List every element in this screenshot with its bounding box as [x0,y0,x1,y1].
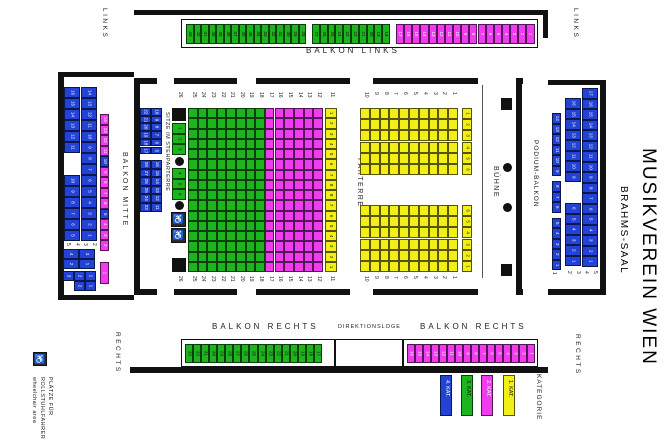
seat[interactable]: 2 [74,281,85,291]
seat[interactable] [226,170,236,180]
seat[interactable] [380,227,390,238]
seat[interactable]: 9 [100,167,109,178]
seat[interactable] [265,170,275,180]
seat[interactable] [236,180,246,190]
seat[interactable] [255,190,265,200]
seat[interactable] [399,227,409,238]
seat[interactable]: 4 [100,219,109,230]
seat[interactable] [370,142,380,153]
seat[interactable] [217,211,227,221]
seat[interactable]: 1 [552,260,561,271]
seat[interactable] [370,216,380,227]
seat[interactable]: 14 [552,113,561,124]
seat[interactable] [246,108,256,118]
seat[interactable] [198,241,208,251]
seat[interactable] [275,231,285,241]
seat[interactable]: 2 [74,271,85,281]
seat[interactable] [419,261,429,272]
seat[interactable] [255,139,265,149]
seat[interactable] [304,129,314,139]
seat[interactable] [275,200,285,210]
seat[interactable] [438,153,448,164]
seat[interactable] [226,190,236,200]
seat[interactable] [429,216,439,227]
seat[interactable] [188,241,198,251]
seat[interactable] [226,149,236,159]
seat[interactable] [217,170,227,180]
seat[interactable] [313,252,323,262]
seat[interactable] [294,159,304,169]
seat[interactable] [188,231,198,241]
seat[interactable] [448,153,458,164]
seat[interactable] [389,153,399,164]
seat[interactable] [207,241,217,251]
seat[interactable] [409,164,419,175]
seat[interactable] [448,227,458,238]
seat[interactable] [217,200,227,210]
seat[interactable]: 1 [81,230,97,241]
seat[interactable]: 6 [462,164,472,175]
seat[interactable] [429,164,439,175]
seat[interactable]: 1 [582,256,598,267]
seat[interactable]: 1 [565,256,581,267]
seat[interactable] [188,252,198,262]
seat[interactable] [313,262,323,272]
seat[interactable] [389,164,399,175]
seat[interactable] [265,262,275,272]
seat[interactable] [429,142,439,153]
seat[interactable] [236,262,246,272]
seat[interactable] [246,139,256,149]
seat[interactable] [419,164,429,175]
seat[interactable]: 11 [552,145,561,156]
seat[interactable] [389,250,399,261]
seat[interactable] [370,239,380,250]
seat[interactable] [313,108,323,118]
seat[interactable]: 8 [552,181,561,192]
seat[interactable] [207,108,217,118]
seat[interactable] [246,118,256,128]
seat[interactable] [226,221,236,231]
seat[interactable] [429,108,439,119]
seat[interactable] [380,250,390,261]
seat[interactable] [255,118,265,128]
seat[interactable] [207,231,217,241]
seat[interactable] [255,170,265,180]
seat[interactable] [409,261,419,272]
seat[interactable] [188,221,198,231]
seat[interactable] [294,211,304,221]
seat[interactable] [255,221,265,231]
seat[interactable] [255,108,265,118]
seat[interactable] [188,170,198,180]
seat[interactable] [419,119,429,130]
seat[interactable]: 14 [100,114,109,125]
seat[interactable] [294,241,304,251]
seat[interactable] [284,190,294,200]
seat[interactable] [236,221,246,231]
seat[interactable]: 2 [63,259,79,269]
standing-place[interactable]: 17 [140,147,151,155]
seat[interactable] [188,262,198,272]
seat[interactable]: 3 [462,239,472,250]
seat[interactable] [360,108,370,119]
seat[interactable]: 3 [63,271,74,281]
seat[interactable] [284,221,294,231]
seat[interactable] [275,211,285,221]
seat[interactable] [409,227,419,238]
seat[interactable] [284,200,294,210]
seat[interactable] [226,139,236,149]
seat[interactable]: 2 [325,252,337,262]
seat[interactable] [198,262,208,272]
wheelchair-space-icon[interactable]: ♿ [171,212,186,227]
seat[interactable]: 4 [172,168,186,179]
standing-place[interactable]: 6 [151,139,162,147]
seat[interactable]: 13 [100,125,109,136]
seat[interactable]: 17 [314,344,322,363]
seat[interactable]: 1 [79,259,95,269]
seat[interactable] [236,139,246,149]
seat[interactable] [419,216,429,227]
seat[interactable]: 18 [382,24,390,44]
seat[interactable] [360,227,370,238]
seat[interactable] [448,205,458,216]
seat[interactable] [429,119,439,130]
seat[interactable] [380,142,390,153]
seat[interactable] [284,252,294,262]
seat[interactable] [360,119,370,130]
standing-place[interactable]: 11 [151,203,162,212]
seat[interactable] [304,241,314,251]
seat[interactable] [380,239,390,250]
seat[interactable] [255,200,265,210]
seat[interactable] [198,170,208,180]
seat[interactable] [226,262,236,272]
seat[interactable] [207,149,217,159]
seat[interactable] [294,180,304,190]
seat[interactable] [246,262,256,272]
seat[interactable]: 1 [527,344,535,363]
seat[interactable]: 1 [462,261,472,272]
seat[interactable]: 5 [552,218,561,229]
seat[interactable] [313,118,323,128]
seat[interactable] [380,108,390,119]
seat[interactable]: 1 [85,281,96,291]
standing-place[interactable]: 5 [151,147,162,155]
seat[interactable] [409,130,419,141]
seat[interactable]: 3 [462,130,472,141]
seat[interactable] [236,149,246,159]
seat[interactable] [399,108,409,119]
seat[interactable] [419,239,429,250]
seat[interactable] [255,211,265,221]
seat[interactable] [419,142,429,153]
seat[interactable] [313,139,323,149]
seat[interactable] [429,227,439,238]
seat[interactable] [198,108,208,118]
seat[interactable] [294,118,304,128]
seat[interactable]: 4 [462,227,472,238]
seat[interactable] [265,221,275,231]
seat[interactable] [380,216,390,227]
seat[interactable] [275,221,285,231]
seat[interactable]: 2 [462,119,472,130]
seat[interactable] [226,200,236,210]
seat[interactable] [448,142,458,153]
seat[interactable] [275,129,285,139]
seat[interactable] [236,108,246,118]
seat[interactable] [255,180,265,190]
seat[interactable] [294,231,304,241]
seat[interactable] [198,231,208,241]
seat[interactable]: 1 [462,108,472,119]
seat[interactable] [207,200,217,210]
seat[interactable] [294,262,304,272]
seat[interactable] [255,241,265,251]
seat[interactable]: 1 [325,262,337,272]
seat[interactable] [217,262,227,272]
seat[interactable] [207,159,217,169]
seat[interactable] [409,250,419,261]
seat[interactable] [360,153,370,164]
seat[interactable] [419,250,429,261]
seat[interactable] [236,118,246,128]
seat[interactable] [284,149,294,159]
seat[interactable] [448,164,458,175]
seat[interactable] [313,129,323,139]
seat[interactable] [217,159,227,169]
seat[interactable] [313,149,323,159]
seat[interactable] [438,227,448,238]
seat[interactable] [313,221,323,231]
seat[interactable] [389,216,399,227]
seat[interactable] [226,129,236,139]
seat[interactable] [188,200,198,210]
seat[interactable] [304,231,314,241]
seat[interactable]: 6 [100,198,109,209]
seat[interactable] [304,221,314,231]
standing-place[interactable]: 14 [151,177,162,186]
seat[interactable] [370,227,380,238]
seat[interactable] [389,119,399,130]
seat[interactable] [294,149,304,159]
seat[interactable] [360,261,370,272]
seat[interactable] [275,118,285,128]
seat[interactable] [409,216,419,227]
seat[interactable]: 5 [325,221,337,231]
seat[interactable] [236,231,246,241]
seat[interactable] [389,227,399,238]
seat[interactable] [275,159,285,169]
seat[interactable] [399,239,409,250]
seat[interactable]: 7 [552,192,561,203]
seat[interactable] [448,130,458,141]
seat[interactable]: 8 [100,177,109,188]
seat[interactable] [284,129,294,139]
seat[interactable] [438,250,448,261]
seat[interactable] [246,241,256,251]
seat[interactable] [429,130,439,141]
seat[interactable]: 4 [462,142,472,153]
seat[interactable] [284,108,294,118]
seat[interactable] [198,180,208,190]
seat[interactable] [284,262,294,272]
seat[interactable] [360,239,370,250]
seat[interactable] [217,231,227,241]
seat[interactable] [275,180,285,190]
seat[interactable] [294,139,304,149]
seat[interactable] [246,129,256,139]
standing-place[interactable]: 26 [140,177,151,186]
seat[interactable] [438,130,448,141]
seat[interactable]: 4 [325,231,337,241]
seat[interactable]: 5 [100,209,109,220]
seat[interactable] [360,130,370,141]
seat[interactable] [284,170,294,180]
seat[interactable]: 1 [172,123,186,134]
seat[interactable] [236,211,246,221]
seat[interactable] [389,108,399,119]
seat[interactable] [370,153,380,164]
seat[interactable] [236,200,246,210]
seat[interactable] [448,119,458,130]
seat[interactable] [448,216,458,227]
seat[interactable] [438,142,448,153]
seat[interactable]: 5 [64,230,80,241]
seat[interactable] [188,129,198,139]
standing-place[interactable]: 28 [140,160,151,169]
seat[interactable] [275,149,285,159]
standing-place[interactable]: 24 [140,194,151,203]
seat[interactable] [284,139,294,149]
seat[interactable] [226,241,236,251]
seat[interactable] [255,129,265,139]
seat[interactable] [448,261,458,272]
seat[interactable] [370,164,380,175]
seat[interactable] [198,129,208,139]
seat[interactable] [265,231,275,241]
seat[interactable] [198,252,208,262]
seat[interactable] [438,119,448,130]
seat[interactable] [207,118,217,128]
seat[interactable] [294,200,304,210]
seat[interactable]: 2 [552,249,561,260]
seat[interactable] [255,252,265,262]
seat[interactable] [313,170,323,180]
seat[interactable]: 2 [100,240,109,251]
seat[interactable] [265,190,275,200]
seat[interactable] [448,250,458,261]
seat[interactable] [409,142,419,153]
seat[interactable] [313,200,323,210]
seat[interactable] [236,170,246,180]
seat[interactable] [399,142,409,153]
seat[interactable] [236,159,246,169]
seat[interactable] [380,164,390,175]
seat[interactable] [198,190,208,200]
seat[interactable] [255,149,265,159]
seat[interactable] [429,250,439,261]
seat[interactable] [304,139,314,149]
seat[interactable] [275,139,285,149]
seat[interactable] [275,252,285,262]
seat[interactable] [419,227,429,238]
seat[interactable] [380,130,390,141]
seat[interactable] [399,261,409,272]
seat[interactable] [360,205,370,216]
seat[interactable] [217,241,227,251]
seat[interactable] [275,108,285,118]
seat[interactable]: 7 [325,170,337,180]
wheelchair-space-icon[interactable]: ♿ [171,228,186,243]
seat[interactable] [370,119,380,130]
seat[interactable] [294,108,304,118]
seat[interactable] [370,250,380,261]
seat[interactable] [255,231,265,241]
seat[interactable] [198,211,208,221]
seat[interactable] [217,129,227,139]
seat[interactable] [207,262,217,272]
seat[interactable]: 6 [172,189,186,200]
seat[interactable] [360,142,370,153]
seat[interactable] [448,239,458,250]
seat[interactable] [304,190,314,200]
seat[interactable] [399,153,409,164]
seat[interactable]: 12 [100,135,109,146]
seat[interactable] [429,239,439,250]
seat[interactable] [265,159,275,169]
seat[interactable] [198,149,208,159]
seat[interactable] [360,250,370,261]
seat[interactable] [265,200,275,210]
seat[interactable] [207,170,217,180]
seat[interactable]: 6 [325,159,337,169]
seat[interactable]: 9 [565,172,581,183]
seat[interactable] [217,221,227,231]
seat[interactable] [304,170,314,180]
seat[interactable] [246,200,256,210]
seat[interactable] [304,118,314,128]
seat[interactable] [284,231,294,241]
seat[interactable] [226,231,236,241]
seat[interactable] [389,205,399,216]
seat[interactable] [380,261,390,272]
seat[interactable] [294,170,304,180]
seat[interactable]: 1 [526,24,534,44]
seat[interactable] [438,261,448,272]
seat[interactable] [207,139,217,149]
seat[interactable] [265,118,275,128]
seat[interactable] [409,119,419,130]
seat[interactable] [246,149,256,159]
seat[interactable] [246,221,256,231]
seat[interactable] [399,216,409,227]
seat[interactable]: 3 [100,230,109,241]
seat[interactable] [226,211,236,221]
seat[interactable] [217,118,227,128]
seat[interactable]: 7 [100,188,109,199]
seat[interactable]: 9 [552,166,561,177]
seat[interactable] [399,250,409,261]
seat[interactable] [236,252,246,262]
seat[interactable] [188,180,198,190]
seat[interactable] [207,221,217,231]
seat[interactable] [265,180,275,190]
seat[interactable] [419,153,429,164]
seat[interactable] [265,252,275,262]
seat[interactable] [188,118,198,128]
